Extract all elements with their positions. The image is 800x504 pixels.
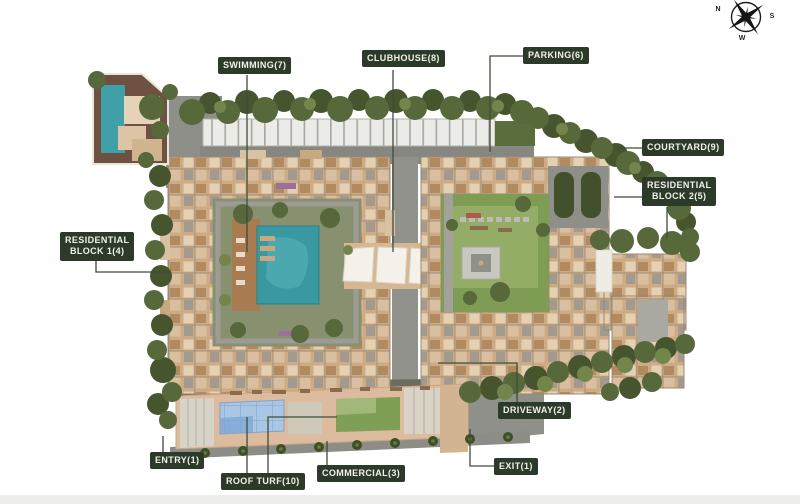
pool-deck [232,219,260,311]
label-roof-turf: ROOF TURF(10) [221,473,305,490]
label-commercial: COMMERCIAL(3) [317,465,405,482]
site-plan-rendering: N S W SWIMMING(7) CLUBHOUSE(8) PARKING(6… [0,0,800,504]
compass-south-letter: S [770,13,775,20]
label-parking: PARKING(6) [523,47,589,64]
label-driveway: DRIVEWAY(2) [498,402,571,419]
compass-west-letter: W [739,35,746,42]
label-residential-block-2-line1: RESIDENTIAL [647,180,711,191]
label-entry: ENTRY(1) [150,452,204,469]
label-residential-block-1-line1: RESIDENTIAL [65,235,129,246]
footer-strip [0,495,800,504]
label-residential-block-1: RESIDENTIAL BLOCK 1(4) [60,232,134,261]
label-exit: EXIT(1) [494,458,538,475]
label-clubhouse: CLUBHOUSE(8) [362,50,445,67]
parking-canopies [203,119,535,146]
wing-canopy [596,250,612,292]
label-courtyard: COURTYARD(9) [642,139,724,156]
label-swimming: SWIMMING(7) [218,57,291,74]
label-residential-block-2: RESIDENTIAL BLOCK 2(5) [642,177,716,206]
hedge-garden [548,166,608,228]
label-residential-block-2-line2: BLOCK 2(5) [652,191,707,202]
compass-north-letter: N [715,6,720,13]
label-residential-block-1-line2: BLOCK 1(4) [70,246,125,257]
